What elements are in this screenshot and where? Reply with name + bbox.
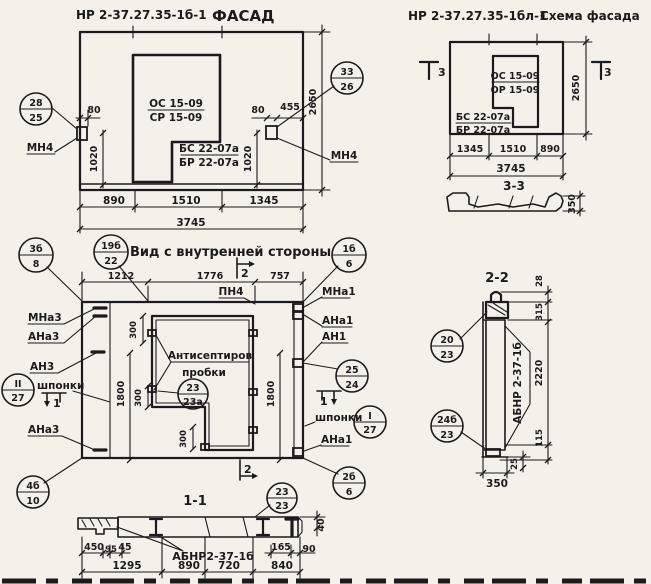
- scheme-sill-mark-top: БС 22-07а: [456, 112, 510, 123]
- inner-label-mna1: МНа1: [322, 286, 356, 298]
- facade-dim-455: 455: [280, 102, 300, 113]
- section-2-2-dim-25: 25: [510, 458, 520, 470]
- inner-plug-squares: [148, 330, 257, 450]
- scheme-title-mark: НР 2-37.27.35-1бл-1: [408, 9, 547, 23]
- scheme-view: НР 2-37.27.35-1бл-1 Схема фасада ОС 15-0…: [408, 9, 640, 180]
- inner-label-ana1b: АНа1: [321, 434, 352, 446]
- inner-section1-left-arrowhead: [44, 401, 50, 407]
- scheme-section3-left-mark: [420, 62, 438, 79]
- facade-dim-890: 890: [103, 195, 125, 207]
- inner-callout-tr-top: 1б: [342, 244, 356, 255]
- section-3-3-title: 3-3: [503, 179, 525, 193]
- facade-sill-mark-bottom: БР 22-07а: [179, 157, 239, 169]
- section-1-1-dim-720: 720: [218, 560, 240, 572]
- scheme-sill-mark-bottom: БР 22-07а: [456, 125, 510, 136]
- inner-dim-1776: 1776: [197, 271, 224, 282]
- section-1-1-title: 1-1: [183, 494, 207, 509]
- inner-label-an3: АН3: [30, 361, 54, 373]
- section-1-1-dim-95: 95: [105, 545, 117, 555]
- section-3-3-profile: [447, 193, 563, 211]
- section-2-2-dim-28: 28: [535, 275, 545, 287]
- inner-callout-25-24-bottom: 24: [345, 380, 359, 391]
- scheme-window-mark-top: ОС 15-09: [491, 71, 540, 82]
- section-2-2-dim-315: 315: [535, 303, 545, 321]
- facade-dim-2650: 2650: [308, 88, 319, 115]
- inner-callout-bl-bottom: 10: [26, 496, 40, 507]
- scheme-dim-ticks: [447, 39, 589, 179]
- section-1-1-dim-165: 165: [271, 542, 291, 553]
- inner-callout-tl-bottom: 8: [33, 259, 40, 270]
- facade-window-mark-bottom: СР 15-09: [150, 112, 203, 124]
- facade-callout-left-bottom: 25: [29, 113, 42, 124]
- scheme-section3-right-label: 3: [604, 66, 612, 79]
- facade-dim-1020-left: 1020: [89, 145, 100, 172]
- section-3-3-view: 3-3 350: [447, 179, 585, 216]
- inner-callout-bl-top: 4б: [26, 481, 40, 492]
- inner-key-right-callout-bottom: 27: [363, 425, 376, 436]
- inner-ana1b-leader: [304, 445, 349, 451]
- inner-note-line1: Антисептиров: [168, 350, 253, 362]
- inner-section2-top-arrowhead: [249, 261, 255, 267]
- facade-window-mark-top: ОС 15-09: [149, 98, 203, 110]
- section-1-1-callout-top: 23: [275, 487, 288, 498]
- section-2-2-callout-top-num: 20: [440, 335, 454, 346]
- inner-an1-leader: [304, 342, 348, 361]
- scheme-section3-left-label: 3: [438, 66, 446, 79]
- inner-plug-callout-bottom: 23а: [183, 397, 203, 408]
- inner-section2-bottom-arrowhead: [252, 473, 258, 479]
- section-2-2-callout-bottom-num: 24б: [437, 415, 457, 426]
- drawing-sheet: НР 2-37.27.35-1б-1 ФАСАД ОС 15-09 СР 15-…: [0, 0, 651, 584]
- facade-dim-1510: 1510: [171, 195, 200, 207]
- inner-key-left-callout-top: II: [14, 379, 21, 390]
- section-1-1-dim-40: 40: [316, 518, 327, 532]
- inner-plug-callout-top: 23: [186, 383, 199, 394]
- inner-title: Вид с внутренней стороны: [130, 245, 331, 260]
- facade-title-mark: НР 2-37.27.35-1б-1: [76, 8, 207, 22]
- inner-ana3b-leader: [28, 436, 95, 450]
- facade-dim-80-right: 80: [251, 105, 265, 116]
- inner-label-an1: АН1: [322, 331, 346, 343]
- inner-callout-tm-bottom: 22: [104, 256, 117, 267]
- inner-dim-757: 757: [270, 271, 290, 282]
- section-1-1-dim-450: 450: [84, 542, 104, 553]
- facade-dim-1345: 1345: [249, 195, 278, 207]
- inner-label-ana1: АНа1: [322, 315, 353, 327]
- scheme-title-name: Схема фасада: [540, 9, 640, 23]
- inner-dim-300-bottom: 300: [179, 430, 189, 448]
- inner-callout-br-top: 2б: [342, 472, 356, 483]
- scheme-dim-1510: 1510: [500, 144, 527, 155]
- facade-plate-right: [266, 126, 277, 139]
- inner-key-left-callout-bottom: 27: [11, 393, 24, 404]
- inner-dim-300-top: 300: [129, 321, 139, 339]
- section-2-2-lifting-loop: [491, 292, 501, 302]
- inner-key-right-callout-top: I: [368, 411, 372, 422]
- scheme-dim-2650: 2650: [571, 74, 582, 101]
- section-2-2-view: 2-2 АБНР 2-37-1б 20 23 24б 23 28 315 222…: [431, 271, 552, 490]
- facade-view: НР 2-37.27.35-1б-1 ФАСАД ОС 15-09 СР 15-…: [20, 7, 363, 233]
- facade-callout-right-top: 33: [340, 67, 353, 78]
- inner-section1-left-label: 1: [53, 397, 61, 410]
- scheme-dim-lines: [450, 36, 592, 180]
- inner-dim-1800-right: 1800: [266, 380, 277, 407]
- section-1-1-ibeams: [150, 519, 269, 535]
- inner-dim-300-mid: 300: [134, 389, 144, 407]
- facade-mn4-left-label: МН4: [27, 142, 54, 154]
- inner-label-mna3: МНа3: [28, 312, 62, 324]
- inner-plug-callout-leader: [158, 391, 208, 394]
- section-2-2-body: [482, 302, 508, 457]
- inner-label-shponki-left: шпонки: [37, 380, 84, 392]
- drawing-canvas: НР 2-37.27.35-1б-1 ФАСАД ОС 15-09 СР 15-…: [0, 0, 651, 584]
- inner-section1-right-label: 1: [320, 395, 328, 408]
- inner-mna1-leader: [304, 297, 350, 307]
- section-1-1-left-hatch: [82, 519, 110, 527]
- inner-left-edge-plates: [92, 308, 106, 450]
- inner-shponki-left-leader: [73, 391, 110, 402]
- inner-section2-bottom-label: 2: [244, 463, 252, 476]
- facade-dim-3745: 3745: [176, 217, 205, 229]
- section-1-1-channel: [286, 519, 298, 536]
- inner-callout-25-24-top: 25: [345, 365, 358, 376]
- inner-shponki-right-leader: [305, 422, 315, 426]
- facade-callout-right-bottom: 26: [340, 82, 354, 93]
- inner-label-ana3: АНа3: [28, 331, 59, 343]
- facade-plate-left: [77, 127, 87, 140]
- section-3-3-dim-350: 350: [567, 194, 578, 214]
- section-1-1-left-block: [78, 518, 118, 534]
- section-1-1-dim-1295: 1295: [112, 560, 141, 572]
- scheme-dim-890: 890: [540, 144, 560, 155]
- section-1-1-dim-890: 890: [178, 560, 200, 572]
- facade-dim-1020-right: 1020: [243, 145, 254, 172]
- section-2-2-dim-350: 350: [486, 478, 508, 490]
- section-2-2-head-hatch: [488, 303, 507, 315]
- inner-callout-tl-top: 3б: [29, 244, 43, 255]
- inner-callout-tm-top: 19б: [101, 241, 121, 252]
- facade-mn4-right-label: МН4: [331, 150, 358, 162]
- section-2-2-title: 2-2: [485, 271, 509, 286]
- scheme-window-mark-bottom: ОР 15-09: [491, 85, 540, 96]
- facade-dim-80-left: 80: [87, 105, 101, 116]
- inner-callout-tr-bottom: 6: [346, 259, 353, 270]
- facade-title-name: ФАСАД: [212, 7, 274, 25]
- facade-sill-mark-top: БС 22-07а: [179, 143, 239, 155]
- section-2-2-mark: АБНР 2-37-1б: [512, 342, 524, 424]
- inner-note-line2: пробки: [182, 367, 226, 379]
- section-1-1-dim-840: 840: [271, 560, 293, 572]
- scheme-dim-1345: 1345: [457, 144, 483, 155]
- section-1-1-view: 1-1 АБНР2-37-1б 23 23 40 450 95 45 165 9…: [78, 483, 327, 578]
- inner-dim-1800-left: 1800: [116, 380, 127, 407]
- section-2-2-dim-115: 115: [535, 429, 545, 447]
- scheme-dim-3745: 3745: [496, 163, 525, 175]
- section-1-1-dim-45: 45: [118, 542, 131, 553]
- inner-pn4-label: ПН4: [219, 286, 244, 298]
- inner-label-ana3b: АНа3: [28, 424, 59, 436]
- inner-callout-br-bottom: 6: [346, 487, 353, 498]
- facade-callout-left-top: 28: [29, 98, 43, 109]
- section-1-1-dim-90: 90: [302, 544, 316, 555]
- section-1-1-callout-bottom: 23: [275, 501, 288, 512]
- inner-section1-right-arrowhead: [331, 399, 337, 405]
- scheme-top-ticks: [489, 34, 537, 45]
- inner-view: Вид с внутренней стороны Антисептиров пр…: [2, 235, 386, 508]
- section-2-2-callout-bottom-den: 23: [440, 430, 453, 441]
- section-2-2-dim-2220: 2220: [534, 359, 545, 386]
- inner-section2-top-label: 2: [241, 267, 249, 280]
- section-2-2-callout-top-den: 23: [440, 350, 453, 361]
